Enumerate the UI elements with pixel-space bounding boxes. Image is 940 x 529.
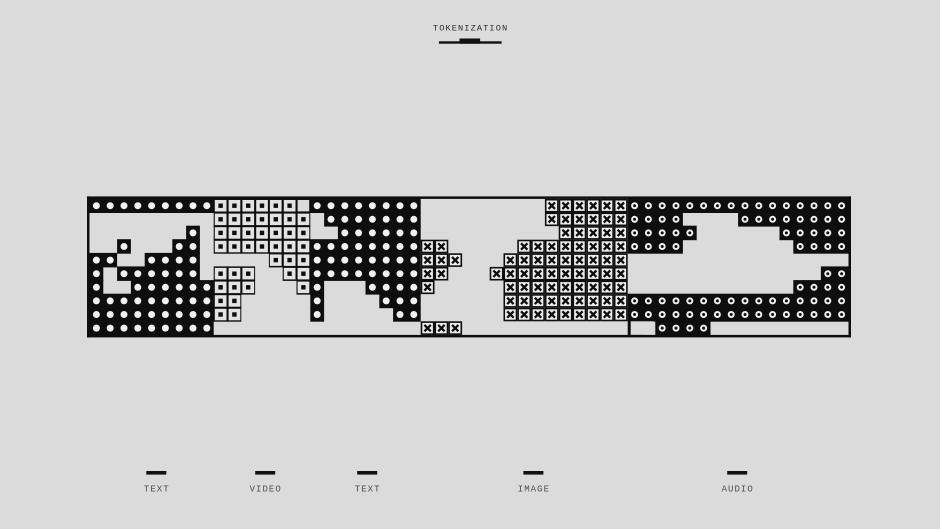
svg-text:IMAGE: IMAGE [518, 485, 550, 495]
svg-text:TOKENIZATION: TOKENIZATION [433, 24, 508, 34]
svg-text:AUDIO: AUDIO [722, 485, 754, 495]
svg-text:TEXT: TEXT [144, 485, 170, 495]
svg-text:TEXT: TEXT [355, 485, 381, 495]
svg-text:VIDEO: VIDEO [250, 485, 282, 495]
